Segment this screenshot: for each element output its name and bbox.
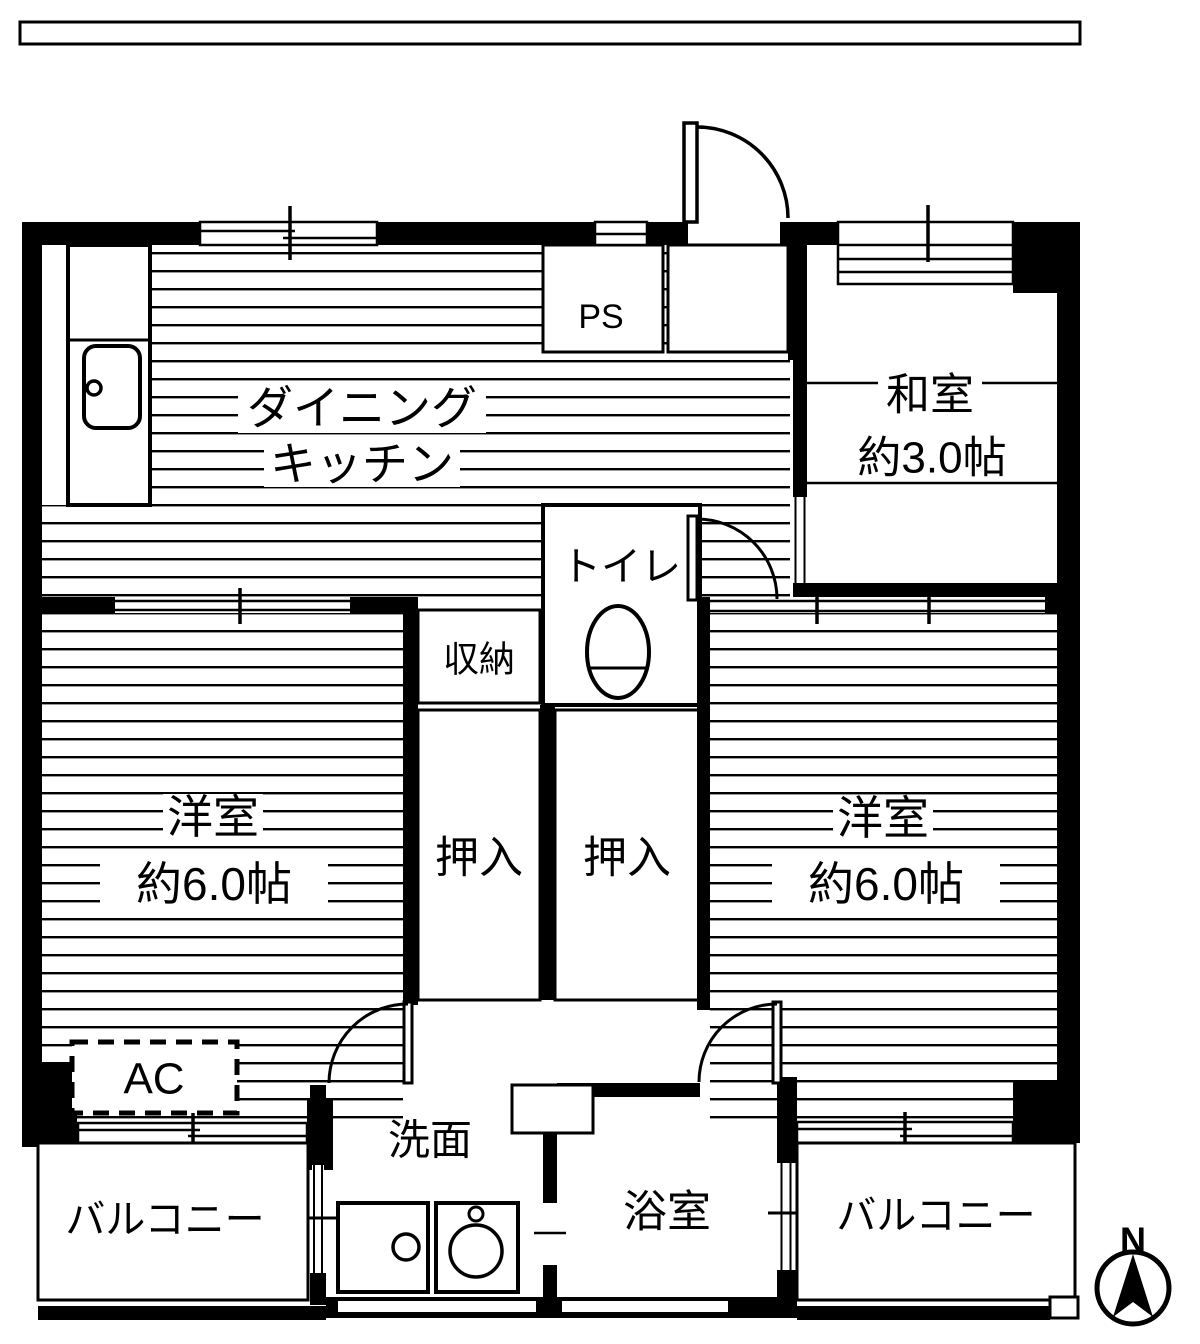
entrance-genkan <box>668 245 788 352</box>
wash-basin-faucet-icon <box>469 1207 483 1221</box>
western-room-right-size: 約6.0帖 <box>808 858 964 910</box>
western-room-right-label: 洋室 <box>837 792 929 844</box>
toilet-bowl-icon <box>587 606 649 698</box>
japanese-room-size: 約3.0帖 <box>857 434 1006 483</box>
balcony-right-step <box>1050 1297 1078 1318</box>
entrance-door-leaf <box>684 123 697 222</box>
pipe-space-label: PS <box>578 298 623 336</box>
compass: N <box>1097 1220 1169 1325</box>
bath-bottom-notch-right <box>562 1301 728 1312</box>
japanese-room-label: 和室 <box>886 371 974 420</box>
closet-left-label: 押入 <box>435 834 523 883</box>
wash-basin-bowl-icon <box>450 1225 502 1277</box>
toilet-door-leaf <box>688 516 697 600</box>
closet-right-label: 押入 <box>583 834 671 883</box>
floor-plan: ダイニング キッチン 和室 約3.0帖 洋室 約6.0帖 洋室 約6.0帖 トイ… <box>0 0 1200 1344</box>
washing-machine-knob-icon <box>393 1234 419 1260</box>
balcony-right-rail <box>797 1306 1050 1320</box>
kitchen-faucet-icon <box>87 381 101 395</box>
toilet-label: トイレ <box>561 545 681 589</box>
western-left-door-leaf <box>404 1002 412 1083</box>
dining-kitchen-label-1: ダイニング <box>247 382 477 434</box>
bathroom-label: 浴室 <box>623 1188 711 1237</box>
western-room-left-label: 洋室 <box>167 791 259 843</box>
balcony-left-rail <box>38 1306 326 1320</box>
entrance-door-swing-icon <box>697 127 788 218</box>
air-conditioner-label: AC <box>123 1055 184 1104</box>
dining-kitchen-label-2: キッチン <box>270 438 454 490</box>
top-info-bar <box>20 22 1080 44</box>
western-right-door-leaf <box>773 1002 781 1083</box>
bath-entry-door <box>512 1085 593 1133</box>
dining-kitchen-floor-left <box>42 505 68 597</box>
storage-label: 収納 <box>443 639 515 680</box>
western-room-left-size: 約6.0帖 <box>136 858 292 910</box>
balcony-left-label: バルコニー <box>65 1198 264 1242</box>
washroom-label: 洗面 <box>388 1117 472 1164</box>
bath-bottom-notch-left <box>338 1301 536 1312</box>
floor-plan-page: ダイニング キッチン 和室 約3.0帖 洋室 約6.0帖 洋室 約6.0帖 トイ… <box>0 0 1200 1344</box>
balcony-right-label: バルコニー <box>836 1194 1035 1238</box>
